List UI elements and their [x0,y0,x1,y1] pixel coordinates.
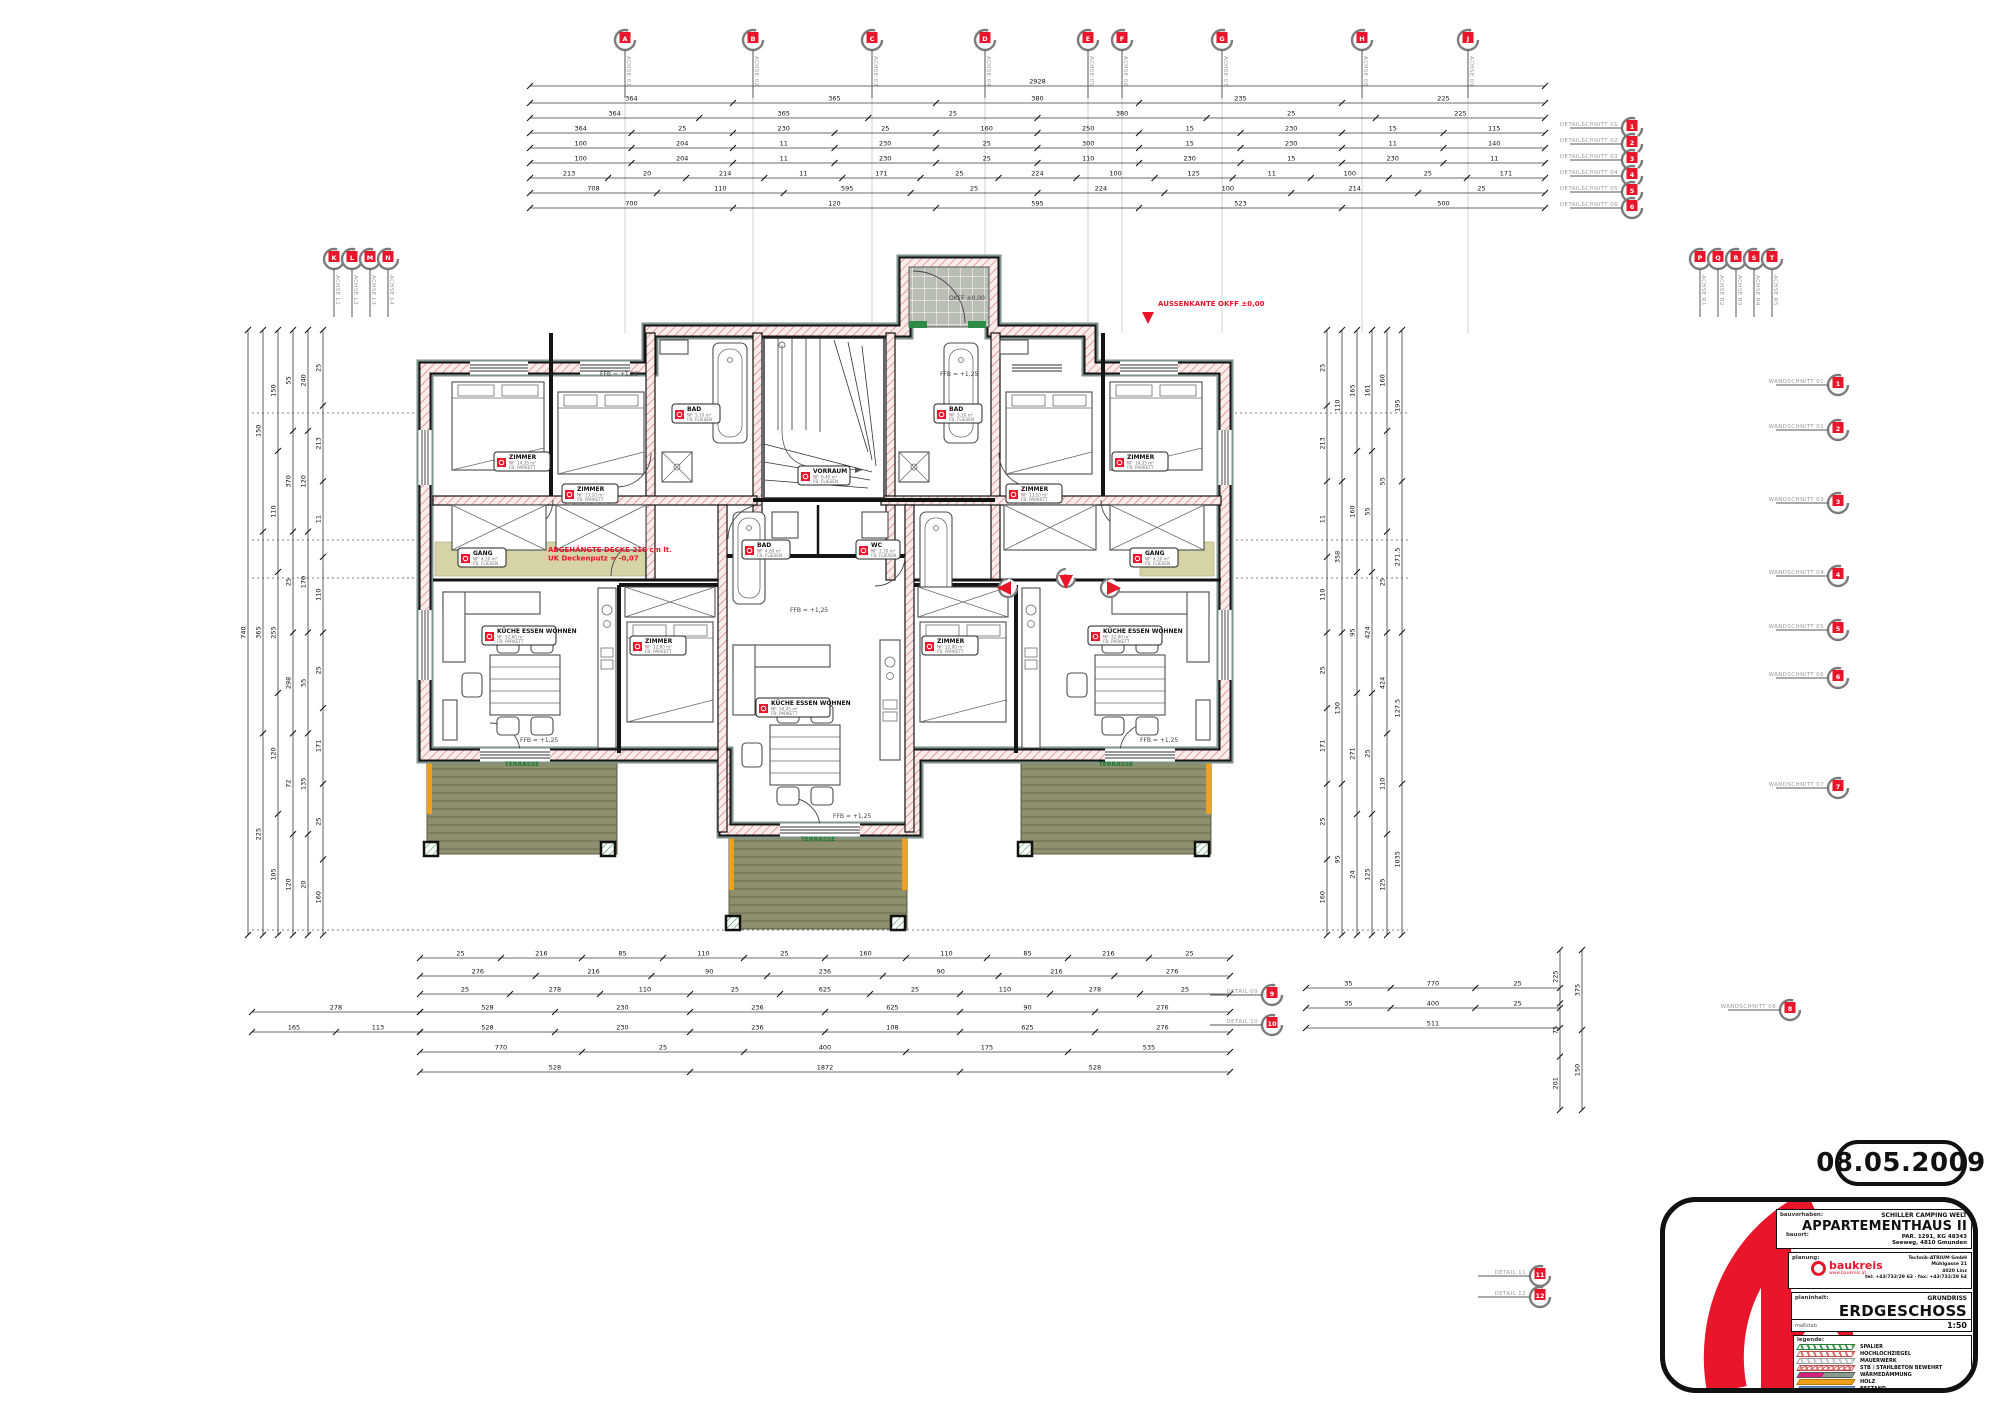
room-stamp-icon [461,554,470,563]
axis-marker: 7WANDSCHNITT 07 [1769,778,1848,798]
dimension-chain: 2521685110251601108521625 [417,950,1233,962]
dimension-value: 25 [315,364,323,372]
axis-marker-letter: 11 [1535,1271,1545,1279]
axis-marker-label: ACHSE 04 [985,56,991,87]
planner-address-line: tel: +43/732/29 63 · fax: +43/732/29 64 [1865,1275,1967,1281]
wardrobe [556,505,646,550]
dimension-value: 55 [300,679,308,687]
window [1012,362,1062,375]
dimension-value: 201 [1552,1077,1560,1089]
axis-marker: 1WANDSCHNITT 01 [1769,375,1848,395]
axis-marker-label: DETAILSCHNITT 03 [1560,154,1618,160]
project-title: APPARTEMENTHAUS II [1802,1219,1967,1234]
chair [497,717,519,735]
pergola-post [726,916,740,930]
dimension-value: 110 [1334,399,1342,411]
dimension-value: 115 [1488,125,1500,133]
dimension-value: 20 [300,880,308,888]
dimension-value: 230 [1285,140,1297,148]
timber-post-marker [902,838,907,890]
dimension-value: 25 [1181,986,1189,994]
axis-marker-label: DETAIL 10 [1227,1019,1259,1025]
axis-marker-letter: 10 [1267,1020,1277,1028]
room-stamp-icon [1091,632,1100,641]
window [419,430,432,485]
room-finish: FB: PARKETT [497,639,524,644]
axis-marker-letter: 9 [1270,990,1275,998]
axis-marker-letter: S [1752,254,1757,262]
pergola-post [1018,842,1032,856]
dimension-value: 370 [285,475,293,487]
dimension-value: 35 [1344,980,1352,988]
room-finish: FB: PARKETT [509,465,536,470]
red-annotation-text: UK Deckenputz = -0,07 [548,555,639,563]
room-stamp-icon [497,458,506,467]
dimension-value: 108 [886,1024,898,1032]
dimension-value: 171 [1319,740,1327,752]
dimension-chain: 364365380235225 [527,95,1548,107]
dimension-value: 11 [1319,515,1327,523]
address-line: Seeweg, 4810 Gmunden [1802,1240,1967,1246]
red-annotation-text: ABGEHÄNGTE DECKE 210 cm lt. [548,545,672,554]
dimension-value: 165 [288,1024,300,1032]
room-finish: FB: PARKETT [937,649,964,654]
dimension-value: 276 [1156,1024,1168,1032]
room-stamp-icon [1133,554,1142,563]
axis-marker: DACHSE 04 [975,30,995,98]
dimension-value: 105 [270,868,278,880]
dimension-value: 1035 [1394,851,1402,868]
room-stamp-icon [759,704,768,713]
dimension-value: 11 [315,515,323,523]
dimension-value: 25 [955,170,963,178]
dimension-value: 150 [270,384,278,396]
dimension-chain: 3643652538025225 [527,110,1548,122]
project-box: bauvorhaben: bauort: SCHILLER CAMPING WE… [1776,1209,1972,1249]
dimension-chain: 25213111102517125160 [1319,327,1331,938]
dimension-value: 255 [270,626,278,638]
axis-marker-letter: D [982,35,988,43]
dimension-value: 595 [1031,200,1043,208]
room-stamp-icon [1009,490,1018,499]
dimension-value: 11 [1490,155,1498,163]
room-stamp: ZIMMERNF: 14,35 m²FB: PARKETT [1112,452,1168,471]
axis-marker-label: ACHSE R3 [1736,275,1742,306]
dimension-value: 595 [841,185,853,193]
chair [1067,673,1087,697]
dimension-value: 25 [1514,980,1522,988]
axis-marker-label: ACHSE R4 [1754,275,1760,306]
dimension-value: 25 [1185,950,1193,958]
room-finish: FB: PARKETT [645,649,672,654]
dimension-value: 380 [1116,110,1128,118]
dimension-value: 100 [1109,170,1121,178]
chair [1136,717,1158,735]
plan-content-box: planinhalt: GRUNDRISS ERDGESCHOSS maßsta… [1791,1292,1972,1332]
dimension-value: 25 [949,110,957,118]
window [780,824,860,837]
dimension-value: 25 [911,986,919,994]
dimension-value: 213 [1319,437,1327,449]
dimension-value: 150 [255,425,263,437]
axis-marker: 5WANDSCHNITT 05 [1769,620,1848,640]
legend-row: BESTAND [1798,1385,1968,1392]
dimension-value: 95 [1349,628,1357,636]
sink [660,340,688,354]
dimension-value: 511 [1427,1020,1439,1028]
planner-address: Technik-ATRIUM GmbH Mühlgasse 21 4020 Li… [1865,1256,1967,1282]
room-stamp: BADNF: 5,10 m²FB: FLIESEN [672,404,720,423]
chair [1102,717,1124,735]
dimension-value: 298 [285,677,293,689]
title-block: bauvorhaben: bauort: SCHILLER CAMPING WE… [1660,1197,1978,1393]
dimension-value: 25 [1287,110,1295,118]
axis-marker-letter: R [1733,254,1738,262]
dimension-value: 700 [625,200,637,208]
dimension-value: 85 [1023,950,1031,958]
axis-marker-label: ACHSE L4 [388,275,394,305]
dimension-value: 72 [285,780,293,788]
client-line: SCHILLER CAMPING WELT [1802,1212,1967,1219]
plan-type: GRUNDRISS [1839,1295,1967,1302]
dimension-value: 171 [315,740,323,752]
legend-swatch-cross-red [1796,1365,1855,1371]
dimension-value: 364 [608,110,620,118]
room-stamp-icon [801,472,810,481]
axis-marker: GACHSE 07 [1212,30,1232,98]
wardrobe [1110,505,1204,550]
scale-row: maßstab 1:50 [1792,1319,1971,1331]
dimension-value: 276 [1166,968,1178,976]
axis-marker-letter: N [385,254,390,262]
dimension-value: 100 [575,155,587,163]
dimension-value: 110 [697,950,709,958]
dimension-chain: 22575201 [1552,947,1564,1113]
axis-marker-letter: P [1698,254,1703,262]
dimension-value: 24 [1349,870,1357,878]
legend-row: STB / STAHLBETON BEWEHRT [1798,1364,1968,1371]
room-stamp: ZIMMERNF: 12,80 m²FB: PARKETT [630,636,686,655]
room-stamp-icon [859,546,868,555]
dimension-value: 160 [315,891,323,903]
axis-marker-letter: Q [1715,254,1721,262]
legend-rows: SPALIERHOCHLOCHZIEGELMAUERWERKSTB / STAH… [1798,1343,1968,1392]
dimension-value: 1872 [817,1064,834,1072]
dimension-value: 225 [1437,95,1449,103]
axis-marker-letter: 4 [1630,171,1635,179]
chair [742,743,762,767]
legend-row: MAUERWERK [1798,1357,1968,1364]
axis-marker-label: DETAILSCHNITT 01 [1560,122,1618,128]
dimension-value: 55 [285,376,293,384]
planinhalt-label: planinhalt: [1795,1295,1829,1301]
terrace-label: TERRASSE [505,761,540,768]
dimension-value: 15 [1186,140,1194,148]
axis-marker: NACHSE L4 [378,249,398,317]
axis-marker-label: ACHSE 02 [753,56,759,87]
dimension-chain: 25213111102517125160 [315,327,327,938]
scale-value: 1:50 [1947,1321,1967,1330]
dimension-value: 276 [472,968,484,976]
room-finish: FB: FLIESEN [757,553,782,558]
legend-label: HOCHLOCHZIEGEL [1860,1351,1911,1357]
dimension-value: 364 [625,95,637,103]
dimension-value: 400 [1427,1000,1439,1008]
legend-row: HOCHLOCHZIEGEL [1798,1350,1968,1357]
dimension-value: 160 [981,125,993,133]
dimension-chain: 10020411230253001523011140 [527,140,1548,152]
axis-marker-label: ACHSE L3 [370,275,376,305]
axis-marker: HACHSE 08 [1352,30,1372,98]
dimension-value: 150 [1574,1064,1582,1076]
dimension-value: 271.5 [1394,548,1402,567]
axis-marker-label: ACHSE 06 [1122,56,1128,87]
dimension-value: 25 [678,125,686,133]
wc-fixture [862,512,888,538]
axis-marker-label: WANDSCHNITT 05 [1769,624,1825,630]
door-threshold [909,321,927,328]
dimension-chain: 25278110256252511027825 [417,986,1233,998]
dimension-value: 110 [1082,155,1094,163]
dimension-value: 300 [1082,140,1094,148]
dimension-value: 15 [1287,155,1295,163]
dimension-value: 120 [285,878,293,890]
dimension-value: 25 [983,140,991,148]
legend-label: MAUERWERK [1860,1358,1897,1364]
legend-swatch-hatch-gray [1796,1358,1855,1364]
room-finish: FB: FLIESEN [949,417,974,422]
dimension-value: 25 [1364,749,1372,757]
axis-marker-letter: C [870,35,875,43]
dimension-value: 25 [315,666,323,674]
timber-post-marker [729,838,734,890]
dimension-value: 195 [1394,399,1402,411]
dimension-chain: 36425230251602501523015115 [527,125,1548,137]
window [1120,362,1178,375]
dimension-value: 230 [879,140,891,148]
dimension-value: 90 [705,968,713,976]
floor-level: FFB = +1,25 [790,607,828,614]
axis-marker-label: DETAILSCHNITT 05 [1560,186,1618,192]
dimension-chain: 150365225 [255,327,267,938]
dimension-value: 120 [270,747,278,759]
legend-row: HOLZ [1798,1378,1968,1385]
room-stamp: ZIMMERNF: 13,10 m²FB: PARKETT [562,484,618,503]
dimension-value: 235 [1234,95,1246,103]
axis-marker: 6DETAILSCHNITT 06 [1560,198,1642,218]
dimension-chain: 2762169023690216276 [417,968,1233,980]
room-stamp-icon [675,410,684,419]
dimension-value: 125 [1187,170,1199,178]
dimension-value: 240 [300,374,308,386]
floor-level: FFB = +1,25 [833,813,871,820]
dimension-value: 214 [719,170,731,178]
dimension-value: 25 [461,986,469,994]
dimension-value: 230 [778,125,790,133]
dimension-value: 135 [300,778,308,790]
dimension-chain: 2928 [527,78,1548,90]
dimension-chain: 1615542425125 [1364,327,1376,938]
window [1219,430,1232,485]
dimension-value: 25 [1424,170,1432,178]
dimension-value: 364 [575,125,587,133]
dimension-chain: 3540025 [1303,1000,1563,1012]
room-stamp-icon [633,642,642,651]
timber-post-marker [1206,762,1211,814]
pergola-post [1195,842,1209,856]
dimension-value: 75 [1552,1026,1560,1034]
dimension-value: 11 [799,170,807,178]
room-stamp-icon [937,410,946,419]
dimension-value: 250 [1082,125,1094,133]
floor-level: FFB = +1,25 [1140,737,1178,744]
axis-marker: 3WANDSCHNITT 03 [1769,493,1848,513]
dimension-value: 100 [1222,185,1234,193]
wardrobe [452,505,546,550]
axis-marker-letter: 5 [1630,187,1635,195]
dimension-chain: 150110255120105 [270,327,282,938]
dimension-chain: 278 [249,1004,423,1016]
axis-marker-label: ACHSE R2 [1718,275,1724,306]
dimension-value: 225 [1454,110,1466,118]
chair [462,673,482,697]
pergola-post [424,842,438,856]
dimension-value: 400 [819,1044,831,1052]
dimension-value: 110 [999,986,1011,994]
axis-marker-label: ACHSE 05 [1088,56,1094,87]
dimension-value: 216 [1102,950,1114,958]
red-annotation: AUSSENKANTE OKFF ±0,00 [1158,300,1265,308]
dimension-value: 216 [1050,968,1062,976]
terrace-label: TERRASSE [1099,761,1134,768]
axis-marker-label: DETAIL 11 [1495,1270,1526,1276]
axis-marker-label: ACHSE 07 [1222,56,1228,87]
legend-label: SPALIER [1860,1344,1883,1350]
dimension-value: 365 [828,95,840,103]
dimension-value: 236 [751,1004,763,1012]
kitchen-counter [1022,588,1040,748]
axis-marker-letter: E [1086,35,1090,43]
axis-marker-letter: T [1770,254,1775,262]
axis-marker-label: WANDSCHNITT 08 [1721,1004,1777,1010]
dimension-value: 25 [731,986,739,994]
axis-marker-label: ACHSE 09 [1468,56,1474,87]
dimension-value: 120 [300,475,308,487]
dimension-value: 213 [315,437,323,449]
scale-label: maßstab [1795,1323,1817,1329]
axis-marker: 8WANDSCHNITT 08 [1721,1000,1800,1020]
date-stamp-text: 08.05.2009 [1816,1148,1985,1178]
dimension-value: 127.5 [1394,699,1402,718]
dimension-chain: 11035813095 [1334,327,1346,938]
dimension-value: 625 [1021,1024,1033,1032]
sideboard [1196,700,1210,740]
room-stamp-icon [745,546,754,555]
dimension-value: 170 [300,576,308,588]
dimension-value: 278 [549,986,561,994]
dimension-value: 125 [1364,868,1372,880]
room-stamp-icon [925,642,934,651]
room-finish: FB: FLIESEN [1145,561,1170,566]
dimension-value: 358 [1334,551,1342,563]
dimension-chain: 2401201705513520 [300,327,312,938]
axis-marker-letter: 6 [1836,673,1841,681]
dimension-chain: 165113 [249,1024,423,1036]
room-finish: FB: PARKETT [1021,497,1048,502]
axis-marker-label: WANDSCHNITT 02 [1769,424,1824,430]
floor-level: FFB = +1,25 [520,737,558,744]
dimension-value: 424 [1379,677,1387,689]
axis-marker-letter: J [1466,35,1469,43]
dimension-value: 216 [587,968,599,976]
dimension-value: 110 [1379,778,1387,790]
axis-marker: 4WANDSCHNITT 04 [1769,566,1848,586]
wardrobe [625,587,715,617]
axis-marker-label: WANDSCHNITT 04 [1769,570,1825,576]
room-stamp: GANGNF: 4,20 m²FB: FLIESEN [1130,548,1178,567]
room-stamp: ZIMMERNF: 14,35 m²FB: PARKETT [494,452,550,471]
dimension-value: 25 [970,185,978,193]
dimension-chain: 2132021411171252241001251110025171 [527,170,1548,182]
axis-marker-label: ACHSE L1 [334,275,340,305]
legend-box: legende: SPALIERHOCHLOCHZIEGELMAUERWERKS… [1793,1335,1972,1391]
dimension-value: 113 [372,1024,384,1032]
plan-level: ERDGESCHOSS [1839,1302,1967,1320]
axis-marker-letter: 4 [1836,571,1841,579]
shower [662,452,692,482]
dimension-chain: 7081105952522410021425 [527,185,1548,197]
pergola-post [601,842,615,856]
sink [1000,340,1028,354]
axis-marker-label: ACHSE 01 [625,56,631,87]
room-finish: FB: PARKETT [771,711,798,716]
window [419,610,432,680]
dimension-value: 171 [875,170,887,178]
axis-marker-letter: 3 [1630,155,1635,163]
dimension-value: 160 [1379,374,1387,386]
dimension-value: 224 [1031,170,1043,178]
dimension-chain: 10020411230251102301523011 [527,155,1548,167]
chair [777,787,799,805]
axis-marker: 9DETAIL 09 [1210,985,1282,1005]
axis-marker: FACHSE 06 [1112,30,1132,98]
dimension-value: 230 [1184,155,1196,163]
dimension-value: 528 [1089,1064,1101,1072]
wardrobe [918,587,1008,617]
timber-post-marker [427,762,432,814]
dimension-value: 95 [1334,855,1342,863]
axis-marker-label: ACHSE R5 [1772,275,1778,306]
axis-marker-label: WANDSCHNITT 07 [1769,782,1825,788]
dimension-value: 20 [643,170,651,178]
legend-swatch-solid-blue [1796,1386,1855,1392]
dimension-value: 216 [535,950,547,958]
dimension-value: 278 [330,1004,342,1012]
axis-marker-letter: A [622,35,627,43]
dimension-value: 230 [616,1004,628,1012]
dimension-value: 110 [315,588,323,600]
dimension-value: 11 [1268,170,1276,178]
dimension-value: 110 [270,505,278,517]
dimension-value: 110 [1319,588,1327,600]
dimension-value: 271 [1349,747,1357,759]
dimension-value: 25 [780,950,788,958]
terrace-label: TERRASSE [801,836,836,843]
dimension-value: 225 [1552,970,1560,982]
axis-marker: 12DETAIL 12 [1478,1287,1550,1307]
shower [772,512,798,538]
window [1219,610,1232,680]
